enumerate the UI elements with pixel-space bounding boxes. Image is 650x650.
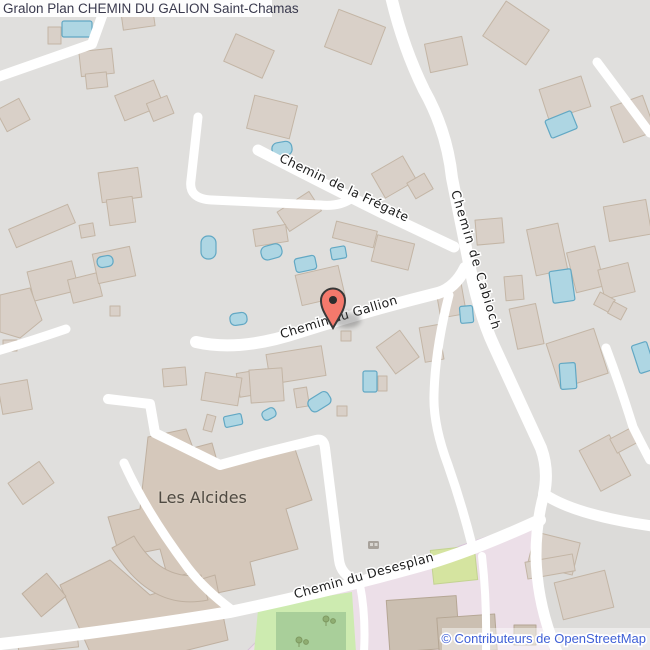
park-wood	[276, 612, 346, 650]
attribution[interactable]: © Contributeurs de OpenStreetMap	[441, 628, 650, 650]
pin-dot	[329, 296, 337, 304]
page-title: Gralon Plan CHEMIN DU GALION Saint-Chama…	[3, 1, 299, 16]
map-canvas[interactable]: Chemin de la Frégate Chemin de Cabioch C…	[0, 0, 650, 650]
map-svg[interactable]: Chemin de la Frégate Chemin de Cabioch C…	[0, 0, 650, 650]
place-label-les-alcides: Les Alcides	[158, 488, 247, 507]
attribution-link[interactable]: © Contributeurs de OpenStreetMap	[441, 631, 646, 646]
road-school-west	[360, 585, 365, 650]
title-bar: Gralon Plan CHEMIN DU GALION Saint-Chama…	[0, 0, 299, 17]
picnic-site-icon	[368, 541, 379, 549]
